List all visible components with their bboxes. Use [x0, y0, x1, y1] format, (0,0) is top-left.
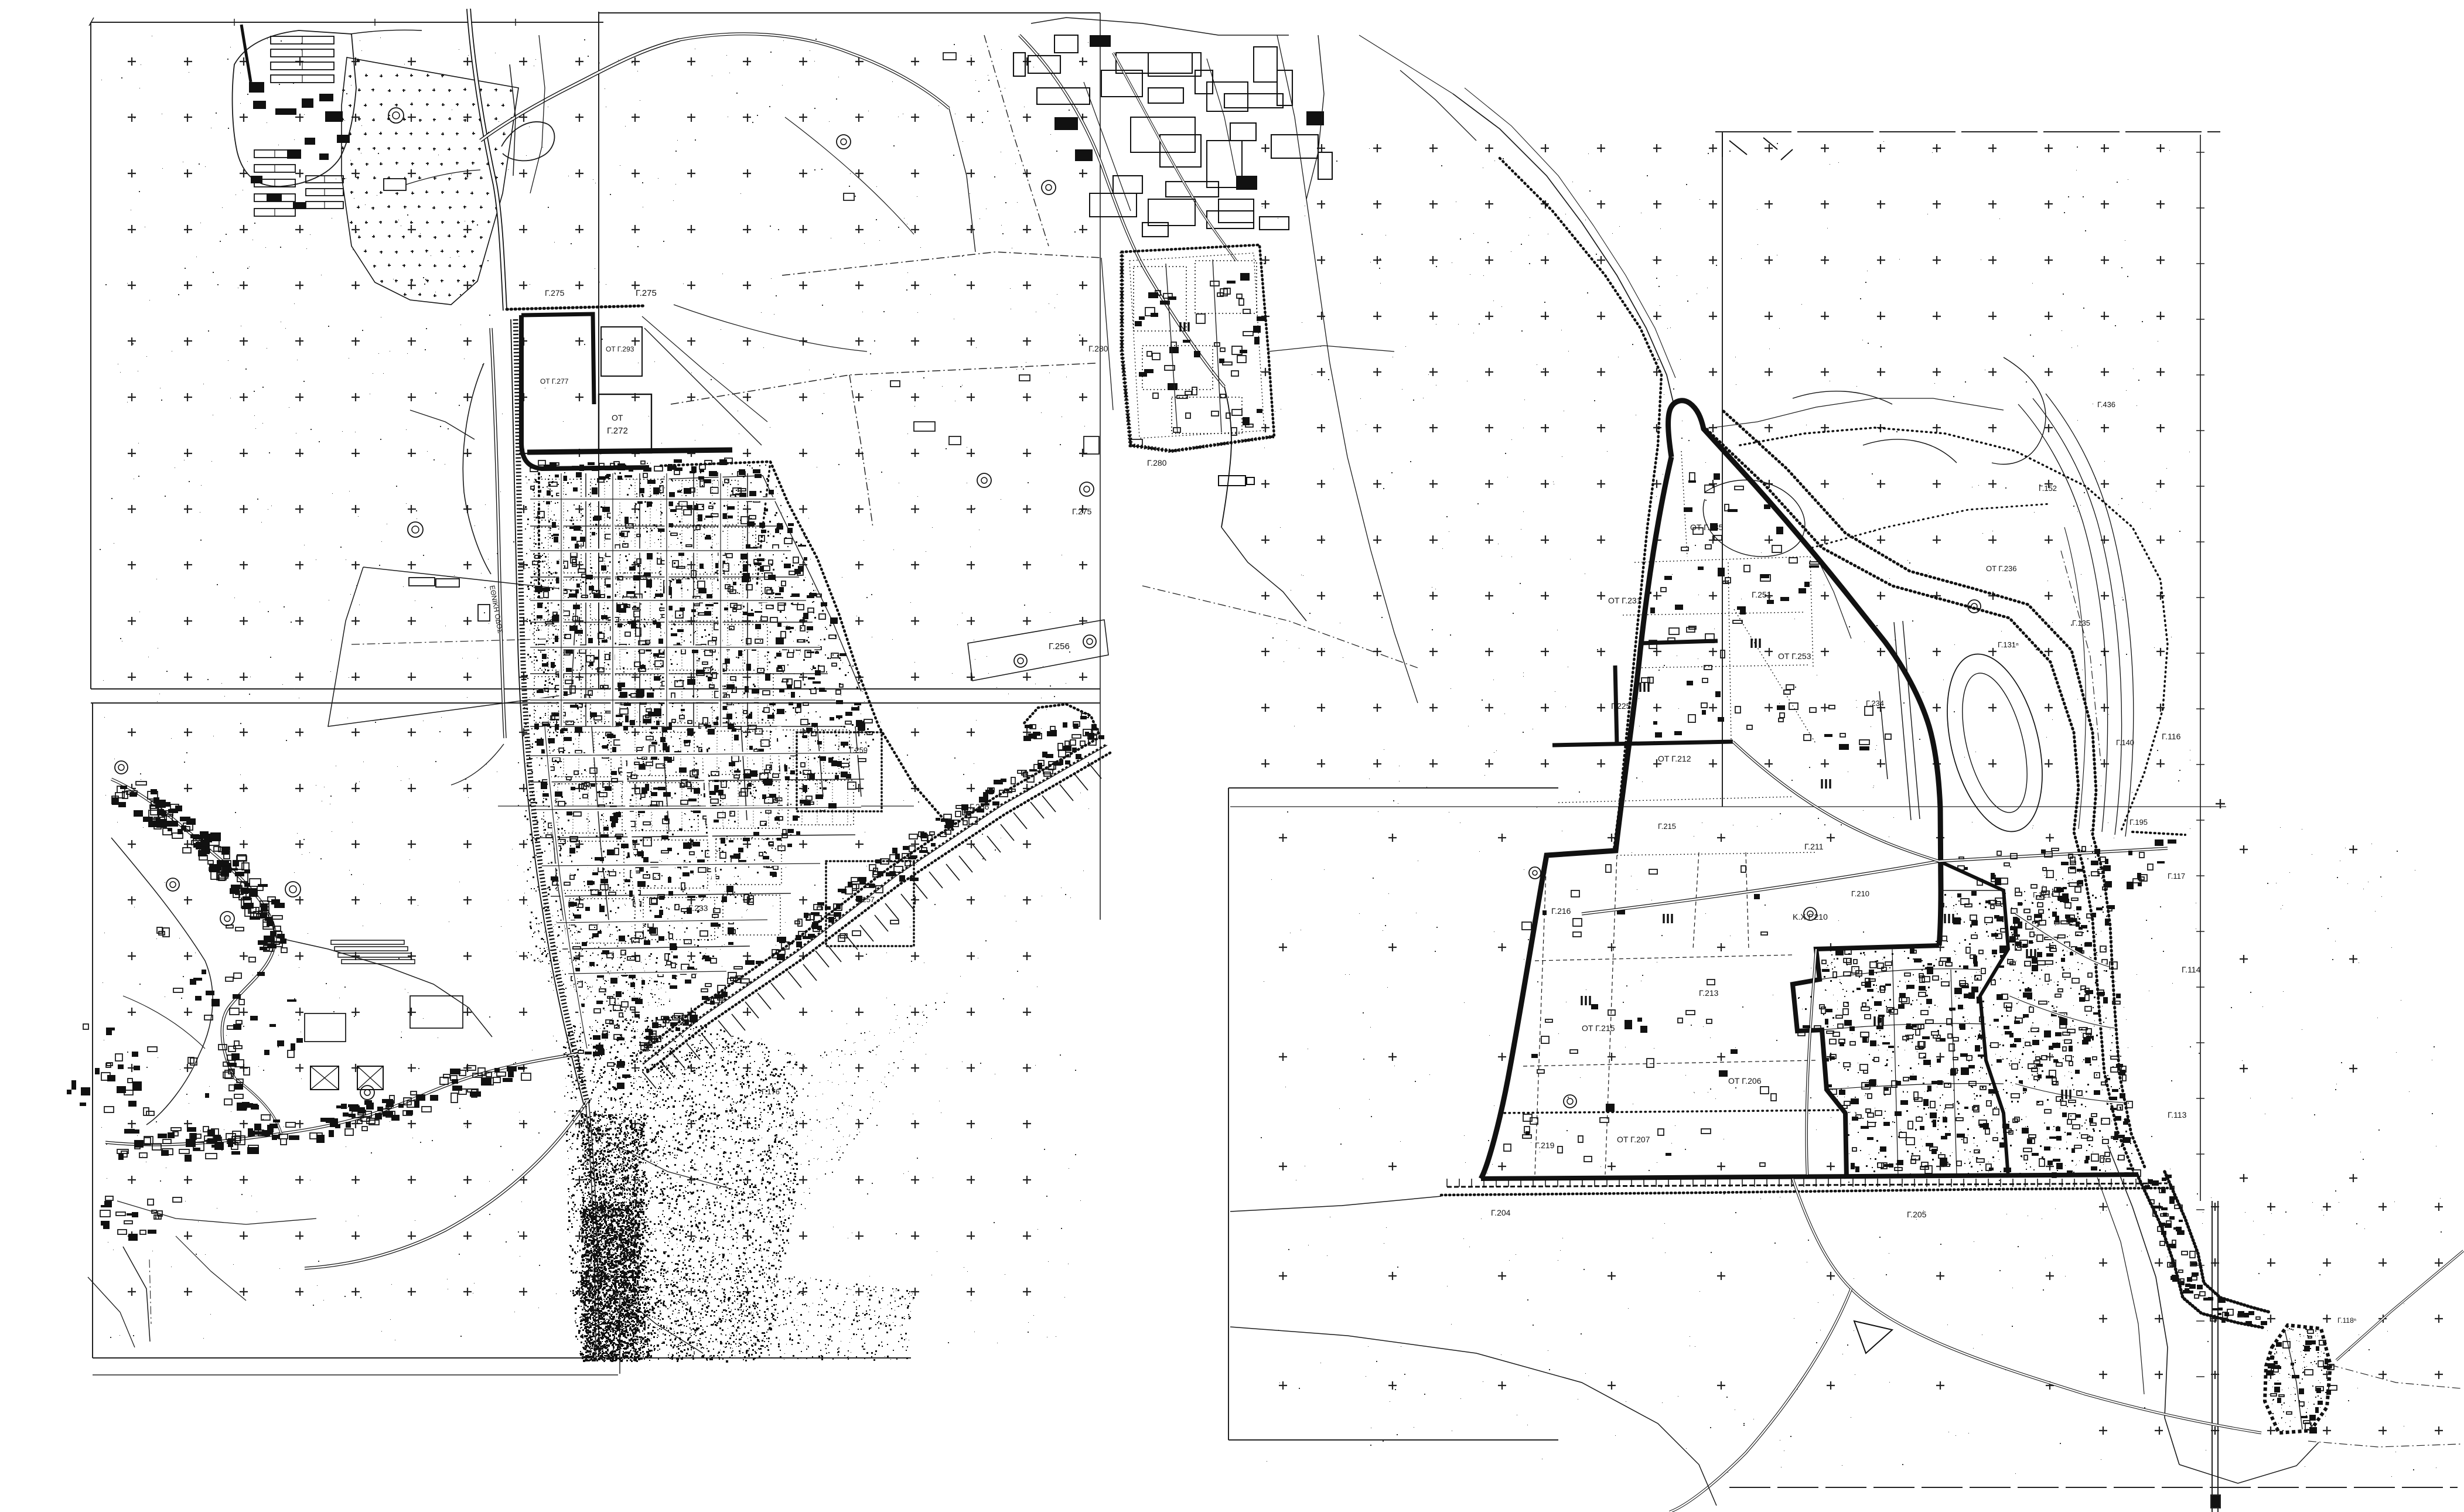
svg-text:OT Γ.277: OT Γ.277: [540, 377, 569, 385]
svg-text:OT Γ.253: OT Γ.253: [1778, 651, 1811, 661]
svg-text:Γ.216: Γ.216: [1551, 906, 1571, 916]
svg-text:Γ.152: Γ.152: [2039, 484, 2057, 493]
svg-text:Γ.116: Γ.116: [2162, 732, 2181, 741]
svg-text:Γ.256: Γ.256: [1049, 641, 1070, 651]
svg-text:Γ.280: Γ.280: [1147, 458, 1167, 467]
svg-text:Γ.211: Γ.211: [1804, 842, 1824, 851]
svg-text:Γ.140: Γ.140: [2116, 738, 2134, 747]
svg-text:Γ.117: Γ.117: [2168, 872, 2185, 880]
svg-text:Γ.275: Γ.275: [1072, 507, 1092, 516]
svg-text:Γ.219: Γ.219: [1535, 1141, 1555, 1150]
svg-text:OT Γ.212: OT Γ.212: [1658, 754, 1691, 763]
svg-text:Γ.195: Γ.195: [2129, 818, 2148, 827]
svg-text:Γ.436: Γ.436: [2097, 400, 2115, 409]
svg-text:OT: OT: [612, 413, 623, 422]
svg-text:OT Γ.206: OT Γ.206: [1728, 1076, 1762, 1086]
svg-text:OT Γ.293: OT Γ.293: [606, 345, 634, 353]
svg-text:Γ.176: Γ.176: [762, 1087, 780, 1096]
svg-text:Γ.259: Γ.259: [849, 746, 868, 755]
svg-text:Γ.233: Γ.233: [688, 903, 708, 913]
svg-text:Γ.113: Γ.113: [2168, 1110, 2187, 1120]
svg-text:Γ.280: Γ.280: [1088, 344, 1108, 353]
svg-text:Γ.275: Γ.275: [636, 288, 657, 298]
svg-text:Γ.215: Γ.215: [1658, 822, 1676, 831]
svg-text:Γ.256: Γ.256: [970, 802, 989, 811]
svg-text:Γ.275: Γ.275: [545, 288, 565, 298]
svg-text:Γ.272: Γ.272: [607, 426, 628, 436]
svg-text:Γ.121ⁿ: Γ.121ⁿ: [2033, 890, 2054, 899]
svg-text:Γ.234: Γ.234: [1866, 699, 1884, 708]
svg-text:Γ.131ⁿ: Γ.131ⁿ: [1998, 640, 2019, 649]
svg-text:Γ.204: Γ.204: [1491, 1208, 1511, 1217]
svg-text:Γ.210: Γ.210: [1851, 889, 1869, 898]
svg-text:Γ.205: Γ.205: [1907, 1210, 1927, 1219]
svg-text:Γ.251: Γ.251: [1752, 590, 1772, 599]
svg-text:Γ.118ⁿ: Γ.118ⁿ: [2337, 1316, 2356, 1325]
svg-text:OT Γ.207: OT Γ.207: [1617, 1135, 1650, 1144]
svg-text:OT Γ.235: OT Γ.235: [1690, 523, 1724, 532]
svg-text:OT Γ.215: OT Γ.215: [1582, 1023, 1615, 1033]
svg-text:Γ.213: Γ.213: [1699, 988, 1719, 998]
svg-text:OT Γ.231: OT Γ.231: [1608, 596, 1641, 605]
svg-text:Γ.114: Γ.114: [2182, 965, 2201, 974]
svg-text:OT Γ.236: OT Γ.236: [1986, 564, 2016, 573]
svg-text:Γ.225: Γ.225: [1611, 701, 1631, 711]
svg-text:Γ.135: Γ.135: [2072, 619, 2090, 627]
